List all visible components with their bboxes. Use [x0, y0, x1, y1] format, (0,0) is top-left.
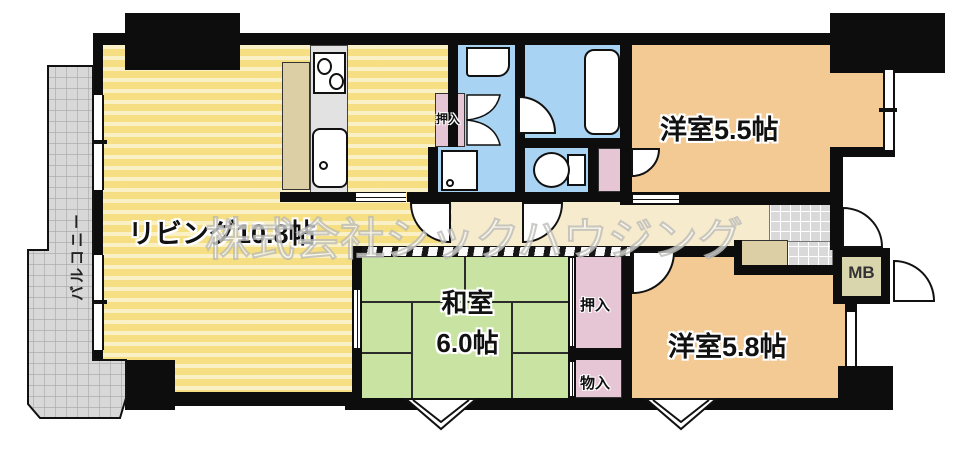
- pillar: [838, 366, 893, 410]
- washbasin-icon: [466, 47, 510, 77]
- window-mullion: [879, 108, 897, 112]
- sink-faucet-icon: [319, 161, 328, 170]
- pillar: [830, 13, 945, 73]
- kitchen-sink-icon: [312, 128, 348, 188]
- wall: [620, 33, 632, 205]
- wall: [515, 138, 632, 148]
- wall: [830, 147, 843, 250]
- door-arc-meter-box: [894, 261, 934, 301]
- wall: [515, 35, 525, 195]
- oshiire-washroom-label: 押入: [436, 110, 460, 127]
- tatami-room-window: [353, 290, 361, 348]
- stove-burner-icon: [317, 58, 332, 75]
- western-room-55-nook: [832, 72, 885, 147]
- tatami-room-name: 和室: [441, 288, 493, 318]
- kitchen-counter: [282, 62, 310, 190]
- fusuma-door: [569, 362, 575, 396]
- western-room-55-label: 洋室5.5帖: [660, 108, 779, 147]
- fusuma-door: [569, 258, 575, 346]
- wall: [568, 348, 630, 360]
- watermark-text: 株式会社シックハウジング: [205, 203, 743, 268]
- wall: [622, 250, 632, 398]
- window: [845, 312, 857, 366]
- meter-box-label: MB: [842, 263, 881, 283]
- washing-machine-drain-icon: [446, 179, 454, 187]
- tatami-room-label: 和室 6.0帖: [395, 283, 540, 364]
- mononyu-label: 物入: [580, 372, 610, 393]
- floorplan: リビング10.8帖 和室 6.0帖 洋室5.5帖 洋室5.8帖 押入 押入 物入…: [0, 0, 960, 470]
- window-mullion: [87, 300, 107, 304]
- entrance-tiles: [770, 202, 832, 242]
- balcony-label: バルコニー: [66, 191, 84, 321]
- door-arc-entry: [843, 208, 882, 247]
- toilet-bowl-icon: [533, 152, 570, 188]
- sliding-door: [356, 192, 406, 202]
- wall: [170, 392, 362, 406]
- window-mullion: [87, 140, 107, 144]
- oshiire-label: 押入: [580, 294, 610, 315]
- stove-burner-icon: [329, 73, 344, 90]
- wall: [280, 192, 356, 202]
- western-room-58-label: 洋室5.8帖: [668, 325, 787, 364]
- wall: [345, 398, 893, 410]
- entrance-tiles-lower: [788, 242, 832, 267]
- wall: [428, 147, 438, 195]
- bathtub-icon: [584, 49, 620, 135]
- wall: [448, 33, 458, 147]
- pillar: [125, 13, 240, 70]
- pillar: [125, 360, 175, 410]
- entrance-step: [740, 240, 788, 267]
- wall: [588, 148, 598, 192]
- tatami-room-size: 6.0帖: [436, 328, 498, 358]
